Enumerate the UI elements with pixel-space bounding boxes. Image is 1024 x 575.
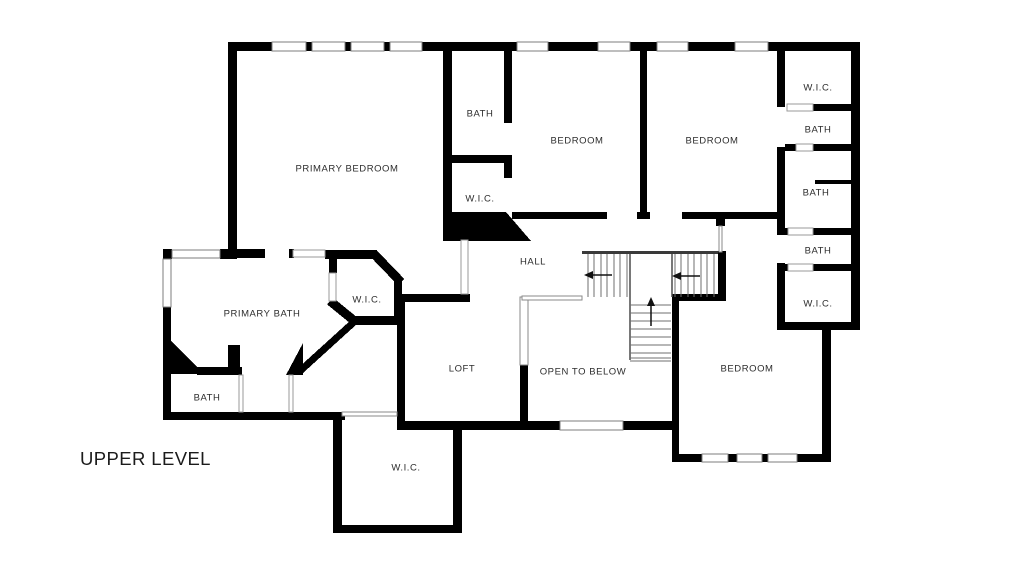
room-label-bedroom-2: BEDROOM: [686, 136, 739, 147]
room-label-bath-right-2: BATH: [803, 188, 830, 199]
room-label-wic-right-bottom: W.I.C.: [803, 299, 832, 310]
room-label-bath-lower: BATH: [194, 393, 221, 404]
room-label-bath-right-1: BATH: [805, 125, 832, 136]
stair-up-arrow-icon: [647, 297, 655, 326]
room-label-bedroom-1: BEDROOM: [551, 136, 604, 147]
room-label-wic-ensuite: W.I.C.: [465, 194, 494, 205]
room-label-primary-bath: PRIMARY BATH: [224, 309, 301, 320]
floor-plan-drawing: [0, 0, 1024, 575]
room-label-loft: LOFT: [449, 364, 475, 375]
room-label-open-to-below: OPEN TO BELOW: [540, 367, 627, 378]
room-label-wic-lower: W.I.C.: [391, 463, 420, 474]
staircase: [582, 251, 718, 361]
room-label-bedroom-3: BEDROOM: [721, 364, 774, 375]
room-label-wic-right-top: W.I.C.: [803, 83, 832, 94]
room-label-primary-bedroom: PRIMARY BEDROOM: [296, 164, 399, 175]
room-label-bath-ensuite: BATH: [467, 109, 494, 120]
room-label-bath-right-3: BATH: [805, 246, 832, 257]
stair-arrow-icon: [672, 272, 700, 280]
floor-plan-page: PRIMARY BEDROOM BATH W.I.C. BEDROOM BEDR…: [0, 0, 1024, 575]
plan-title: UPPER LEVEL: [80, 448, 211, 470]
room-label-wic-primary: W.I.C.: [352, 295, 381, 306]
room-label-hall: HALL: [520, 257, 546, 268]
